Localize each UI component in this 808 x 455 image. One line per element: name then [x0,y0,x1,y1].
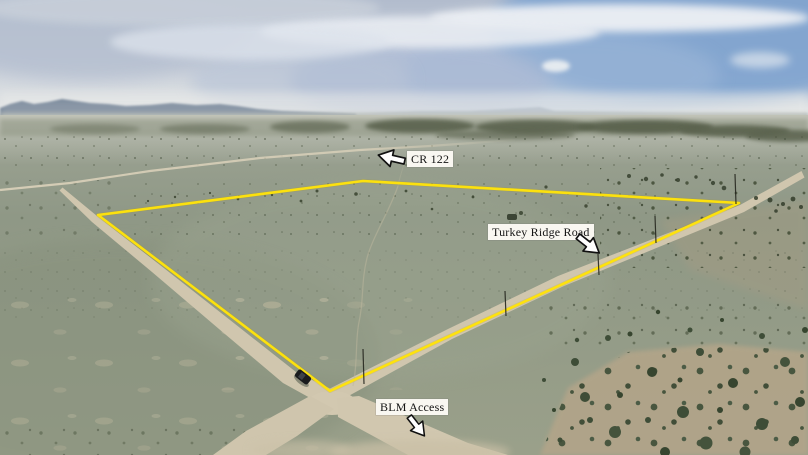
aerial-photo-stage: CR 122 Turkey Ridge Road BLM Access [0,0,808,455]
aerial-photo-scene [0,0,808,455]
cr122-road-label: CR 122 [407,151,453,167]
